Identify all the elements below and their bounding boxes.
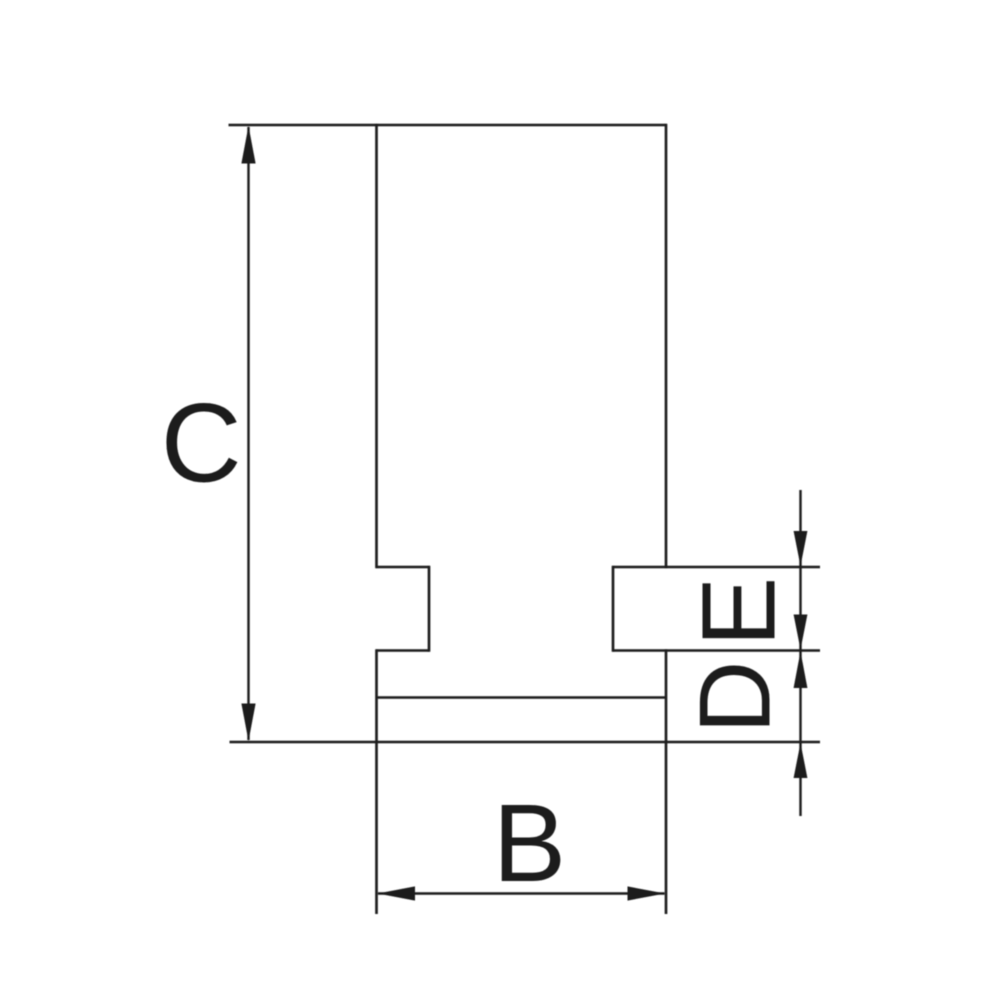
svg-text:B: B bbox=[493, 782, 566, 905]
svg-text:E: E bbox=[681, 577, 798, 647]
svg-text:D: D bbox=[680, 661, 792, 734]
svg-text:C: C bbox=[161, 380, 242, 505]
